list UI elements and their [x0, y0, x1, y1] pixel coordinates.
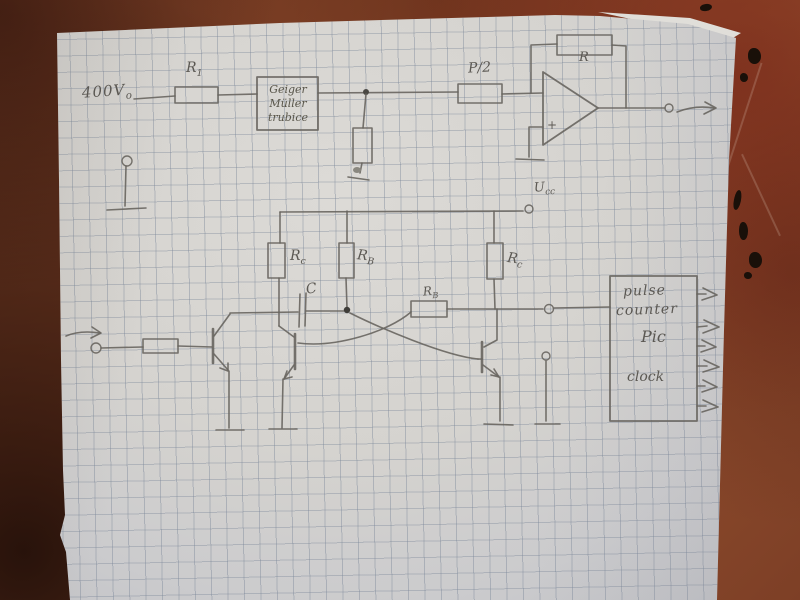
wire-input-hv [134, 96, 175, 99]
r1-label: R1 [186, 60, 203, 79]
transistor-t2 [269, 326, 297, 429]
counter-label-counter: counter [616, 301, 678, 319]
transistor-t3 [478, 342, 513, 425]
rc1-label: Rc [290, 248, 306, 267]
opamp-plus-sign: + [547, 118, 557, 132]
ucc-rail [280, 211, 523, 212]
resistor-p2 [458, 84, 502, 103]
transistor-t1 [213, 314, 244, 430]
ref-terminal [535, 352, 560, 424]
voltage-label: 400Vo [81, 80, 133, 104]
input-terminal [91, 343, 101, 353]
wire-input [101, 347, 143, 348]
counter-output-arrows [697, 288, 719, 412]
rc2-label: Rc [506, 250, 524, 271]
resistor-r1 [175, 87, 218, 103]
wire-to-t1 [178, 346, 212, 347]
ucc-label: Ucc [533, 179, 555, 198]
pulse-out-terminal [545, 305, 554, 314]
feedback-r-label: R [579, 50, 589, 65]
resistor-rb1 [339, 211, 354, 308]
capacitor-c [299, 293, 306, 327]
wire-collector-node [230, 312, 298, 313]
wire-p2-opamp [502, 93, 543, 94]
base-node-dot [344, 307, 350, 313]
ucc-terminal [525, 205, 533, 213]
cross-wire-1 [350, 313, 478, 359]
resistor-rb2 [411, 301, 447, 317]
p2-label: P/2 [468, 59, 492, 76]
rb1-label: RB [356, 247, 375, 268]
wire-to-counter [554, 307, 610, 308]
feedback-loop [531, 35, 626, 108]
wire-rc2-node [447, 309, 543, 347]
input-arrow [66, 327, 101, 338]
resistor-rc1 [268, 212, 285, 326]
cross-wire-2 [298, 312, 411, 344]
c-label: C [305, 280, 318, 297]
opamp-plus-ground [516, 127, 544, 160]
resistor-rc2 [487, 211, 503, 309]
rb2-label: RB [422, 283, 438, 301]
counter-label-pulse: pulse [623, 282, 666, 299]
wire-r1-geiger [218, 94, 257, 95]
output-terminal [665, 104, 673, 112]
probe-symbol [107, 156, 146, 210]
counter-label-clock: clock [627, 369, 664, 385]
opamp-triangle [543, 72, 598, 145]
geiger-tube-label: Geiger Müller trubice [258, 79, 318, 129]
photo-of-circuit-sketch: 400Vo R1 Geiger Müller trubice P/2 R + U… [0, 0, 800, 600]
output-arrow [677, 102, 716, 114]
counter-label-pic: Pic [641, 327, 666, 346]
pulldown-resistor [348, 94, 372, 180]
wire-geiger-p2 [318, 92, 458, 93]
input-resistor [143, 339, 178, 353]
